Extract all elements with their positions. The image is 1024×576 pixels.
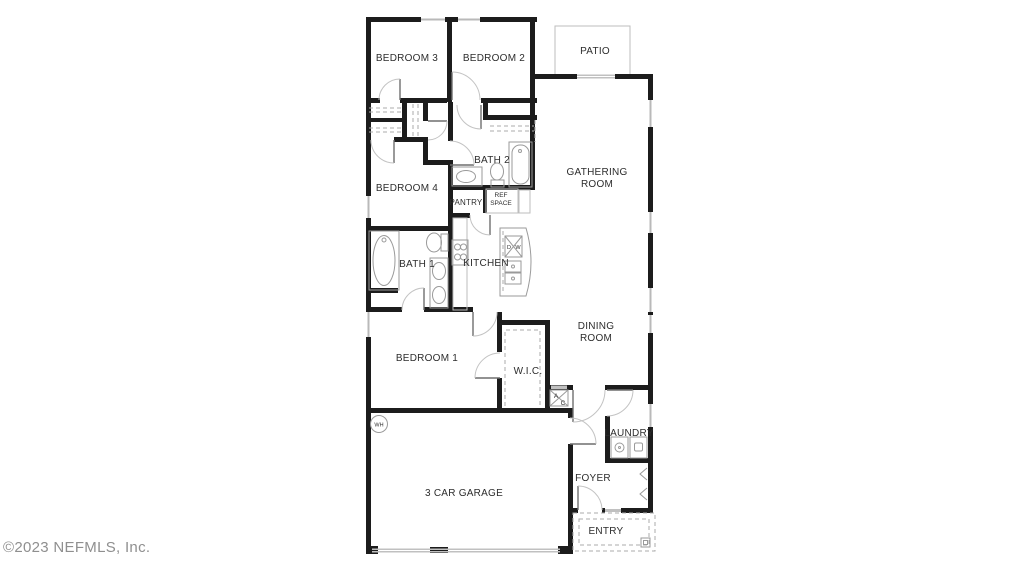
copyright-text: ©2023 NEFMLS, Inc.: [3, 539, 150, 556]
entry-sidelite: [605, 509, 621, 512]
patio-sliding-door: [577, 75, 615, 79]
room-label-dining-line2: ROOM: [580, 333, 612, 344]
room-label-gathering-line2: ROOM: [581, 179, 613, 190]
room-label-wic: W.I.C.: [514, 366, 543, 377]
room-label-gathering-line1: GATHERING: [567, 167, 628, 178]
bath1-bathtub: [369, 231, 399, 290]
ac-label-a: A: [554, 393, 559, 400]
bath2-bathtub: [509, 142, 532, 187]
dishwasher-label-d: D: [507, 245, 511, 251]
window-dining-right-1: [648, 288, 653, 312]
room-label-ref-space-line1: REF: [495, 192, 508, 199]
foyer-shelf-chevron-1: [640, 468, 647, 480]
window-bedroom2-top: [458, 17, 480, 22]
room-label-foyer: FOYER: [575, 473, 611, 484]
room-label-bedroom-2: BEDROOM 2: [463, 53, 525, 64]
bath2-sink-vanity: [452, 167, 482, 186]
door-bedroom3: [379, 79, 400, 100]
room-label-dining-line1: DINING: [578, 321, 615, 332]
water-heater-label: WH: [374, 423, 383, 429]
door-wic: [475, 353, 500, 378]
room-label-kitchen: KITCHEN: [463, 258, 509, 269]
window-bedroom3-top: [421, 17, 445, 22]
floorplan-drawing: BEDROOM 3 BEDROOM 2 PATIO BATH 2 GATHERI…: [0, 0, 1024, 576]
room-label-bath-1: BATH 1: [399, 259, 435, 270]
window-laundry-right: [648, 404, 653, 427]
room-label-patio: PATIO: [580, 46, 610, 57]
room-label-garage: 3 CAR GARAGE: [425, 488, 503, 499]
kitchen-upper-counter: [519, 190, 530, 213]
bath2-toilet: [491, 163, 505, 187]
room-label-bedroom-3: BEDROOM 3: [376, 53, 438, 64]
room-label-entry: ENTRY: [589, 526, 624, 537]
door-bedroom2-closet: [457, 105, 481, 129]
room-label-bedroom-4: BEDROOM 4: [376, 183, 438, 194]
door-bedroom2: [452, 72, 480, 100]
door-bedroom1: [473, 312, 497, 336]
door-laundry: [607, 390, 633, 416]
door-front-entry: [578, 486, 602, 510]
door-hall-linen: [428, 121, 447, 140]
door-bath2: [450, 141, 474, 165]
room-label-laundry: LAUNDRY: [604, 428, 653, 439]
window-bedroom4-left: [366, 196, 371, 218]
window-dining-right-2: [648, 315, 653, 333]
window-gathering-right-2: [648, 212, 653, 233]
window-bedroom1-left: [366, 312, 371, 337]
room-label-ref-space-line2: SPACE: [490, 200, 512, 207]
garage-door-line: [372, 549, 560, 553]
floorplan-page: BEDROOM 3 BEDROOM 2 PATIO BATH 2 GATHERI…: [0, 0, 1024, 576]
dryer-icon: [630, 437, 647, 458]
door-bedroom4: [371, 140, 394, 163]
window-gathering-right-1: [648, 100, 653, 127]
washer-icon: [611, 437, 628, 458]
ac-louver-door: [551, 386, 567, 390]
dishwasher-label-w: W: [515, 245, 521, 251]
ac-label-c: C: [561, 400, 566, 407]
foyer-shelf-chevron-2: [640, 488, 647, 500]
bath1-toilet: [427, 233, 449, 252]
room-label-bedroom-1: BEDROOM 1: [396, 353, 458, 364]
room-label-pantry: PANTRY: [450, 198, 483, 207]
room-label-bath-2: BATH 2: [474, 155, 510, 166]
door-bath1: [402, 288, 424, 310]
door-dining-foyer: [573, 390, 605, 422]
door-pantry: [470, 215, 490, 235]
